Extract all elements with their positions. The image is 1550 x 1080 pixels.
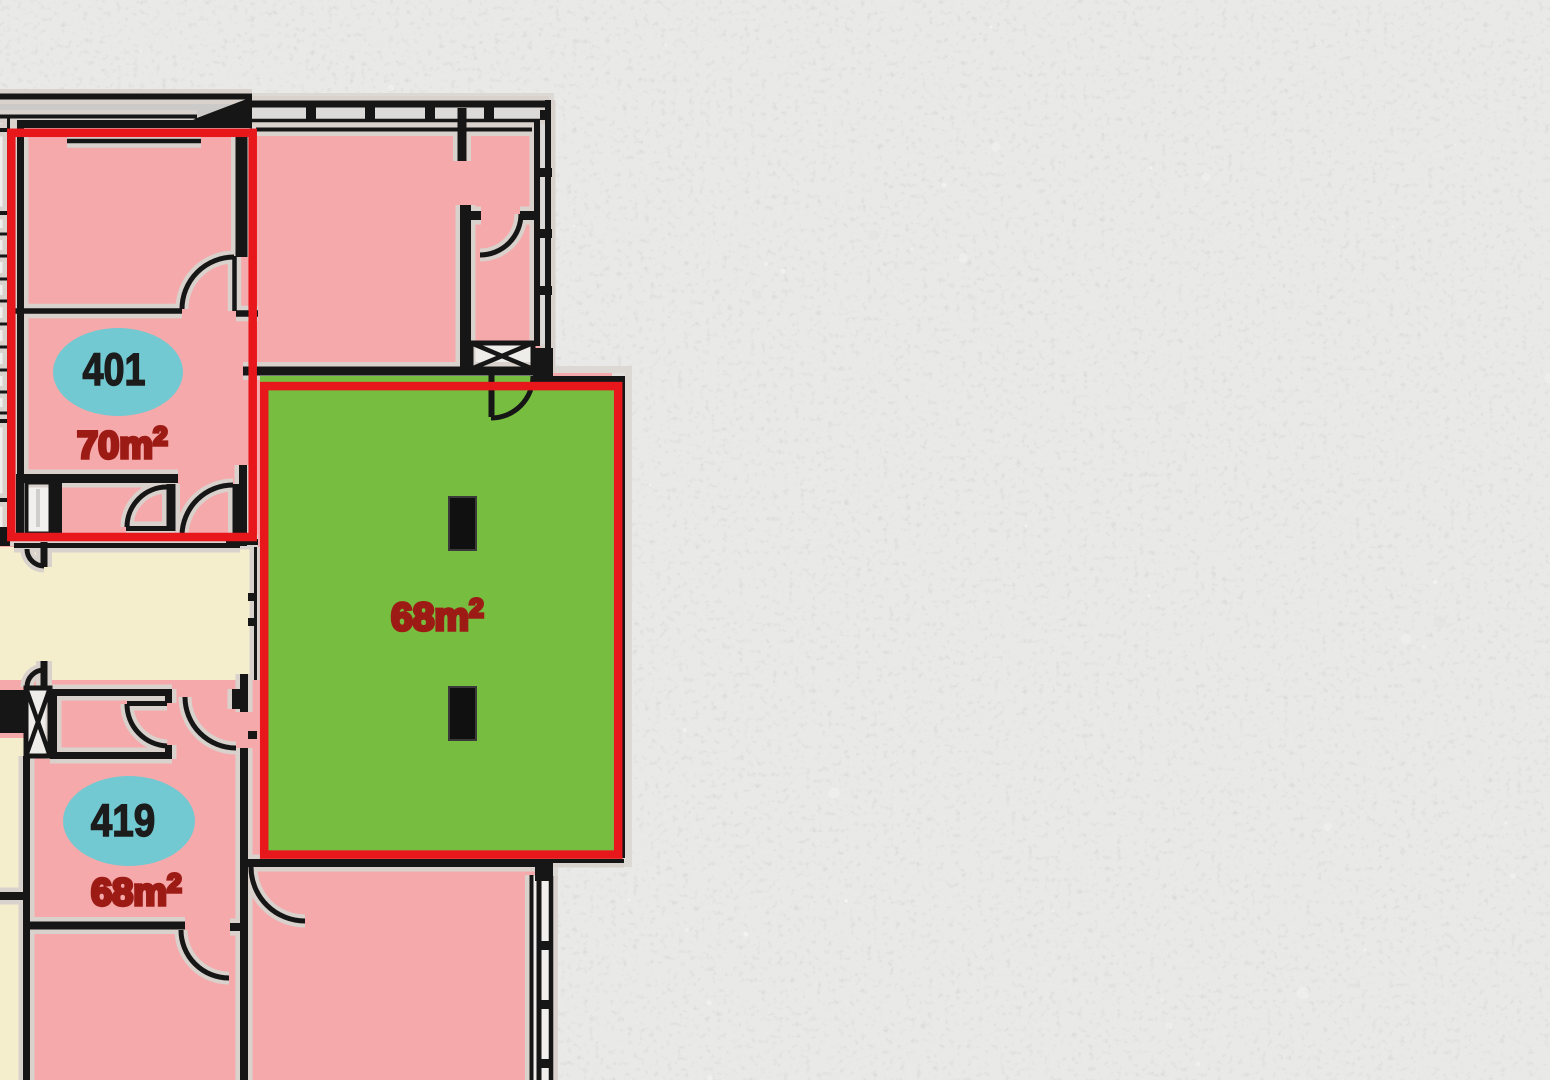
svg-text:401: 401 — [82, 344, 145, 395]
svg-text:419: 419 — [91, 795, 156, 845]
